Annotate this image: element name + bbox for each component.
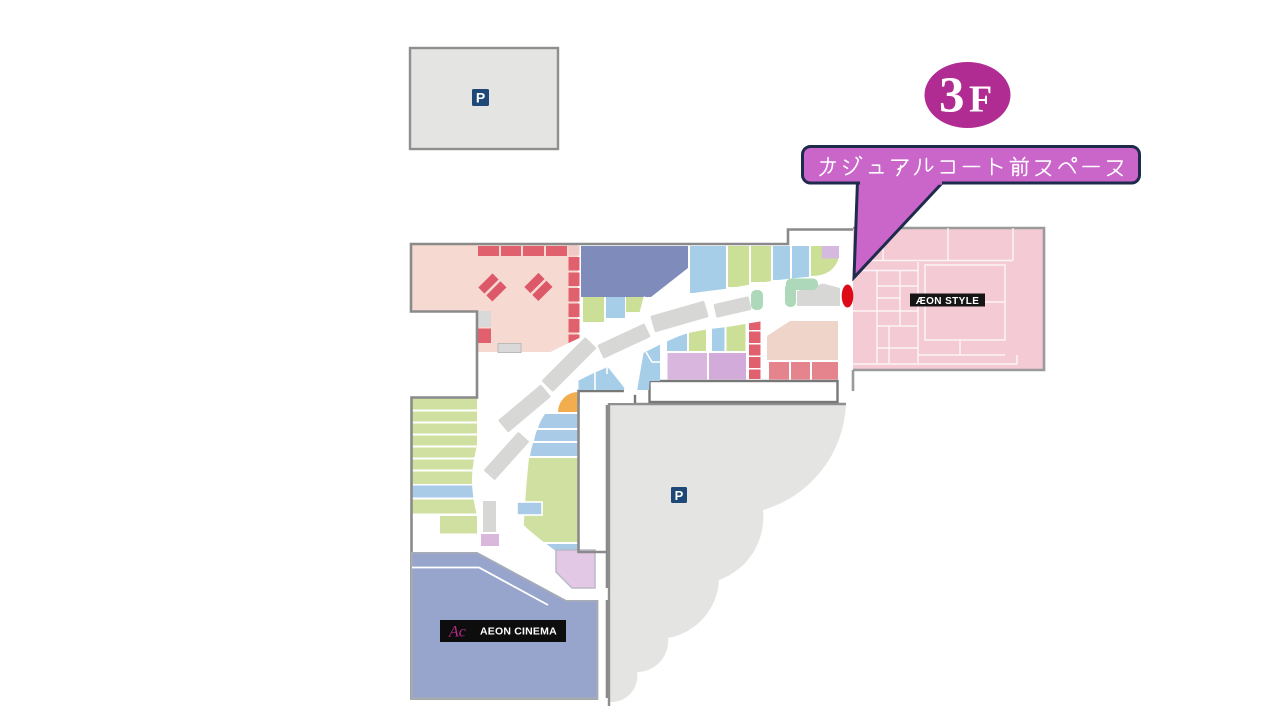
svg-text:P: P: [476, 90, 485, 106]
svg-text:P: P: [675, 488, 684, 503]
svg-text:AEON CINEMA: AEON CINEMA: [480, 626, 557, 638]
svg-text:Ac: Ac: [448, 624, 466, 641]
svg-text:ÆON STYLE: ÆON STYLE: [916, 296, 980, 307]
